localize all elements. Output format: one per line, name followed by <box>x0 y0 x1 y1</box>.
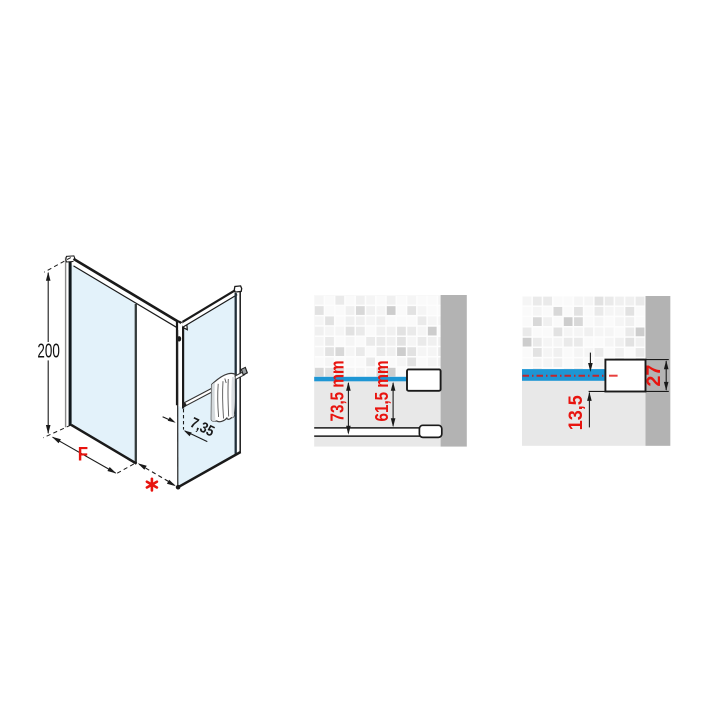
svg-text:F: F <box>78 444 88 466</box>
svg-text:61,5 mm: 61,5 mm <box>371 361 392 422</box>
svg-text:27: 27 <box>643 365 665 387</box>
svg-text:200: 200 <box>37 340 59 362</box>
svg-text:73,5 mm: 73,5 mm <box>327 361 348 422</box>
svg-text:13,5: 13,5 <box>565 395 587 430</box>
